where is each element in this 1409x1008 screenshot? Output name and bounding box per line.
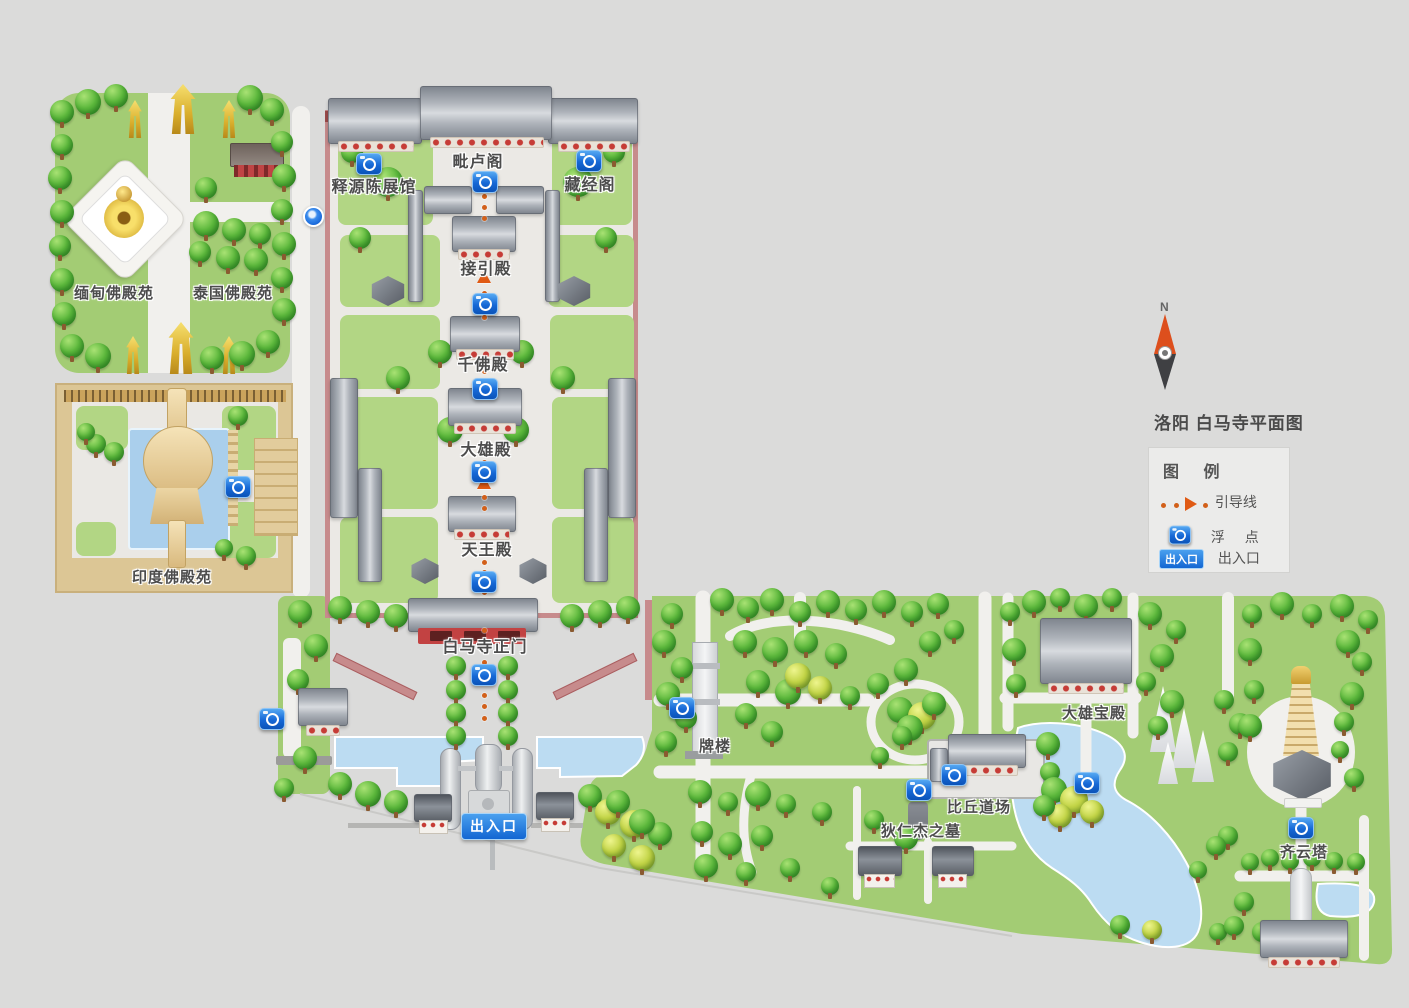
direnjie-house-roof [858, 846, 902, 876]
tree [51, 134, 73, 156]
india-stupa-skirt [150, 488, 204, 524]
legend-title: 图 例 [1163, 458, 1229, 482]
tree [1218, 742, 1238, 762]
guide-line-dot [482, 704, 487, 709]
tree [595, 227, 617, 249]
tree [200, 346, 224, 370]
west-inner-hall [358, 468, 382, 582]
india-lawn [76, 522, 116, 556]
tree [1138, 602, 1162, 626]
myanmar-pagoda-spire [116, 186, 132, 202]
place-label-pailou: 牌楼 [699, 735, 731, 756]
entrance-house-right-roof [536, 792, 574, 820]
place-label-daxiongbao: 大雄宝殿 [1062, 702, 1126, 723]
tree [812, 802, 832, 822]
tree [751, 825, 773, 847]
qianfo-hall-roof [450, 316, 520, 352]
tree [1261, 849, 1279, 867]
entrance-altar-dome [482, 798, 494, 810]
east-side-hall [608, 378, 636, 518]
qiyun-south-gate-pillars [1268, 957, 1340, 968]
tree [498, 656, 518, 676]
tree [244, 248, 268, 272]
tree [1142, 920, 1162, 940]
tree [446, 680, 466, 700]
tree [1102, 588, 1122, 608]
tree [1148, 716, 1168, 736]
tree [249, 223, 271, 245]
tree [761, 721, 783, 743]
camera-marker-icon[interactable] [1074, 772, 1100, 794]
tree [272, 298, 296, 322]
camera-marker-icon[interactable] [472, 293, 498, 315]
tree [1352, 652, 1372, 672]
tree [386, 366, 410, 390]
tree [688, 780, 712, 804]
tree [229, 341, 255, 367]
direnjie-house-roof [932, 846, 974, 876]
entrance-pylon-center [475, 744, 502, 794]
tree [104, 442, 124, 462]
tree [271, 131, 293, 153]
tree [1206, 836, 1226, 856]
legend-guide-line-row: 引导线 [1159, 492, 1257, 512]
daxiongbao-hall-roof [1040, 618, 1132, 684]
tree [1344, 768, 1364, 788]
guide-line-dot [482, 194, 487, 199]
tree [271, 199, 293, 221]
guide-line-dot [482, 216, 487, 221]
west-strip-house-pillars [306, 725, 340, 736]
shiyuan-hall-pillars [338, 141, 414, 152]
place-label-india: 印度佛殿苑 [132, 566, 212, 587]
tree [944, 620, 964, 640]
tree [237, 85, 263, 111]
map-title: 洛阳 白马寺平面图 [1154, 409, 1304, 434]
west-side-hall [330, 378, 358, 518]
direnjie-house-base [938, 874, 967, 888]
tree [661, 603, 683, 625]
tree [1336, 630, 1360, 654]
tree [671, 657, 693, 679]
compass-north-label: N [1160, 300, 1169, 314]
tree [871, 747, 889, 765]
legend-entrance-row: 出入口 出入口 [1159, 548, 1260, 568]
legend-float-point-label: 浮 点 [1211, 529, 1267, 545]
tree [216, 246, 240, 270]
tree [1238, 714, 1262, 738]
tree [1110, 915, 1130, 935]
tree [616, 596, 640, 620]
tree [498, 726, 518, 746]
tianwang-hall-roof [448, 496, 516, 532]
tree [1150, 644, 1174, 668]
guide-line-dot [482, 716, 487, 721]
compass: N [1146, 300, 1186, 396]
daxiongbao-pillars [1048, 683, 1124, 694]
tree [349, 227, 371, 249]
tree [85, 343, 111, 369]
guide-line-dot [482, 205, 487, 210]
tree [1340, 682, 1364, 706]
guide-line-dot [482, 495, 487, 500]
tree [1214, 690, 1234, 710]
tree [446, 726, 466, 746]
camera-marker-icon[interactable] [472, 378, 498, 400]
tree [271, 267, 293, 289]
tree [762, 637, 788, 663]
place-label-cangjing: 藏经阁 [564, 171, 615, 195]
tree [1238, 638, 1262, 662]
biqiu-hall-roof [948, 734, 1026, 768]
tree [1244, 680, 1264, 700]
guide-line-dot [482, 693, 487, 698]
tree [1302, 604, 1322, 624]
camera-marker-icon[interactable] [471, 571, 497, 593]
jieyin-wing-left [408, 190, 423, 302]
tree [780, 858, 800, 878]
tree [328, 596, 352, 620]
tree [794, 630, 818, 654]
tree [901, 601, 923, 623]
tree [1270, 592, 1294, 616]
entrance-crossbar [499, 766, 513, 771]
tree [760, 588, 784, 612]
place-label-myanmar: 缅甸佛殿苑 [74, 282, 154, 303]
india-stupa-base [168, 520, 186, 568]
tree [328, 772, 352, 796]
tree [694, 854, 718, 878]
tree [293, 746, 317, 770]
tree [1074, 594, 1098, 618]
tree [272, 164, 296, 188]
east-inner-hall [584, 468, 608, 582]
tree [446, 656, 466, 676]
legend-float-point-row: 浮 点 [1159, 520, 1267, 540]
tree [867, 673, 889, 695]
tree [498, 703, 518, 723]
entrance-badge[interactable]: 出入口 [461, 813, 527, 840]
camera-icon [1169, 526, 1191, 545]
camera-marker-icon[interactable] [472, 171, 498, 193]
qiyun-pagoda-cap [1291, 666, 1311, 684]
entrance-house-right-base [541, 818, 570, 832]
entrance-house-left-roof [414, 794, 452, 822]
entrance-crossbar [458, 766, 476, 771]
tree [104, 84, 128, 108]
pilu-hall-pillars [430, 137, 544, 148]
tree [228, 406, 248, 426]
tree [1331, 741, 1349, 759]
compass-hub [1158, 346, 1172, 360]
place-label-shiyuan: 释源陈展馆 [331, 173, 416, 197]
tree [1358, 610, 1378, 630]
camera-marker-icon[interactable] [906, 779, 932, 801]
entrance-pond-east [537, 737, 644, 777]
tree [49, 235, 71, 257]
india-stupa-dome [143, 426, 213, 496]
tree [735, 703, 757, 725]
entrance-sign-pole [490, 838, 495, 870]
shiyuan-hall-roof [328, 98, 422, 144]
guide-line-dot [482, 315, 487, 320]
place-label-daxiong: 大雄殿 [460, 436, 511, 460]
tree [60, 334, 84, 358]
tree [384, 790, 408, 814]
tree [1036, 732, 1060, 756]
tree [1002, 638, 1026, 662]
tree [745, 781, 771, 807]
tree [629, 845, 655, 871]
place-label-jieyin: 接引殿 [460, 255, 511, 279]
legend-entrance-label: 出入口 [1218, 550, 1260, 566]
tree [691, 821, 713, 843]
camera-marker-icon[interactable] [669, 697, 695, 719]
entrance-house-left-base [419, 820, 448, 834]
tree [652, 630, 676, 654]
south-white-tower [1290, 868, 1312, 928]
tree [428, 340, 452, 364]
tree [825, 643, 847, 665]
tree [1234, 892, 1254, 912]
forecourt-east-wall [645, 600, 652, 700]
tree [1080, 800, 1104, 824]
tree [894, 658, 918, 682]
guide-line-dot [482, 506, 487, 511]
tree [52, 302, 76, 326]
tree [746, 670, 770, 694]
tree [736, 862, 756, 882]
tree [1224, 916, 1244, 936]
tree [446, 703, 466, 723]
tree [718, 832, 742, 856]
tree [1166, 620, 1186, 640]
tree [356, 600, 380, 624]
tree [718, 792, 738, 812]
tree [816, 590, 840, 614]
jieyin-colonnade-left [424, 186, 472, 214]
tree [789, 601, 811, 623]
tree [48, 166, 72, 190]
tree [845, 599, 867, 621]
tree [498, 680, 518, 700]
tree [602, 834, 626, 858]
location-dot[interactable] [303, 206, 324, 227]
place-label-biqiu: 比丘道场 [947, 796, 1011, 817]
tree [872, 590, 896, 614]
tree [75, 89, 101, 115]
tree [1160, 690, 1184, 714]
tree [1000, 602, 1020, 622]
tree [655, 731, 677, 753]
tree [50, 200, 74, 224]
tree [808, 676, 832, 700]
place-label-pilu: 毗卢阁 [452, 148, 503, 172]
tree [785, 663, 811, 689]
guide-line-sample [1159, 495, 1211, 511]
tree [50, 100, 74, 124]
tree [840, 686, 860, 706]
tree [1347, 853, 1365, 871]
tree [629, 809, 655, 835]
tree [1136, 672, 1156, 692]
tree [304, 634, 328, 658]
direnjie-house-base [864, 874, 895, 888]
tree [551, 366, 575, 390]
place-label-tianwang: 天王殿 [461, 536, 512, 560]
camera-marker-icon[interactable] [1288, 817, 1314, 839]
cangjing-hall-roof [548, 98, 638, 144]
tree [892, 726, 912, 746]
tree [606, 790, 630, 814]
tree [1334, 712, 1354, 732]
tree [193, 211, 219, 237]
tree [733, 630, 757, 654]
tree [1022, 590, 1046, 614]
tree [927, 593, 949, 615]
myanmar-pagoda-ring [104, 198, 144, 238]
jieyin-wing-right [545, 190, 560, 302]
tree [274, 778, 294, 798]
tree [1050, 588, 1070, 608]
place-label-qianfo: 千佛殿 [457, 351, 508, 375]
qiyun-south-gate-roof [1260, 920, 1348, 958]
temple-map-canvas[interactable]: 释源陈展馆毗卢阁藏经阁接引殿千佛殿大雄殿天王殿白马寺正门缅甸佛殿苑泰国佛殿苑印度… [0, 0, 1409, 1008]
tree [260, 98, 284, 122]
tree [1006, 674, 1026, 694]
tree [919, 631, 941, 653]
camera-marker-icon[interactable] [356, 153, 382, 175]
guide-line-dot [482, 560, 487, 565]
tree [189, 241, 211, 263]
camera-marker-icon[interactable] [941, 764, 967, 786]
camera-marker-icon[interactable] [471, 664, 497, 686]
place-label-zhengmen: 白马寺正门 [442, 633, 527, 657]
pilu-hall-roof [420, 86, 552, 140]
tree [1242, 604, 1262, 624]
tree [355, 781, 381, 807]
tree [222, 218, 246, 242]
guide-line-dot [482, 628, 487, 633]
entrance-badge-sample: 出入口 [1159, 549, 1204, 569]
tree [922, 692, 946, 716]
zhengmen-gate-roof [408, 598, 538, 632]
tree [821, 877, 839, 895]
west-strip-house-roof [298, 688, 348, 726]
tree [288, 600, 312, 624]
camera-marker-icon[interactable] [471, 461, 497, 483]
tree [588, 600, 612, 624]
tree [77, 423, 95, 441]
tree [776, 794, 796, 814]
tree [1033, 795, 1055, 817]
india-gate-tower [254, 438, 298, 536]
camera-marker-icon[interactable] [259, 708, 285, 730]
tree [1330, 594, 1354, 618]
tree [215, 539, 233, 557]
tree [1241, 853, 1259, 871]
jieyin-colonnade-right [496, 186, 544, 214]
place-label-qiyunta: 齐云塔 [1280, 841, 1328, 862]
legend-guide-line-label: 引导线 [1215, 494, 1257, 510]
tree [710, 588, 734, 612]
tree [1189, 861, 1207, 879]
daxiong-hall-pillars [454, 423, 516, 434]
india-garden [55, 383, 293, 593]
jieyin-hall-roof [452, 216, 516, 252]
place-label-direnjie: 狄仁杰之墓 [881, 820, 961, 841]
place-label-thailand: 泰国佛殿苑 [193, 282, 273, 303]
legend-box: 图 例 引导线 浮 点 出入口 出入口 [1148, 447, 1290, 573]
tree [50, 268, 74, 292]
tree [256, 330, 280, 354]
qiyun-pavilion-base [1284, 798, 1322, 808]
tree [272, 232, 296, 256]
tree [560, 604, 584, 628]
tree [737, 597, 759, 619]
tree [384, 604, 408, 628]
camera-marker-icon[interactable] [576, 150, 602, 172]
tree [236, 546, 256, 566]
camera-marker-icon[interactable] [225, 476, 251, 498]
tree [195, 177, 217, 199]
